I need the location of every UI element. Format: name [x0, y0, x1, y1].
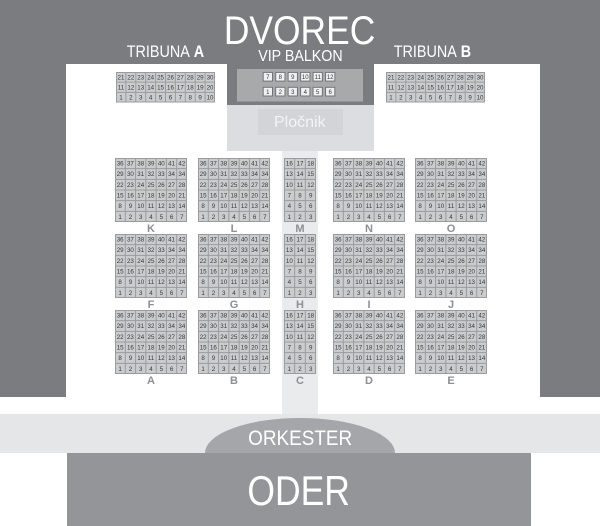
svg-text:13: 13 — [468, 203, 475, 210]
svg-text:36: 36 — [117, 161, 124, 168]
svg-text:21: 21 — [261, 269, 268, 276]
svg-text:12: 12 — [458, 203, 465, 210]
svg-text:9: 9 — [429, 355, 433, 362]
svg-text:10: 10 — [286, 334, 293, 341]
svg-text:4: 4 — [149, 214, 153, 221]
svg-text:37: 37 — [209, 237, 216, 244]
svg-text:30: 30 — [209, 323, 216, 330]
svg-text:23: 23 — [344, 182, 351, 189]
svg-text:26: 26 — [240, 258, 247, 265]
svg-text:40: 40 — [158, 313, 165, 320]
svg-text:34: 34 — [478, 247, 485, 254]
svg-text:16: 16 — [344, 345, 351, 352]
svg-text:25: 25 — [148, 334, 155, 341]
svg-text:23: 23 — [427, 258, 434, 265]
svg-text:38: 38 — [220, 313, 227, 320]
svg-text:9: 9 — [309, 345, 313, 352]
svg-text:5: 5 — [377, 290, 381, 297]
svg-text:9: 9 — [309, 193, 313, 200]
svg-text:8: 8 — [336, 203, 340, 210]
svg-text:14: 14 — [261, 203, 268, 210]
svg-text:5: 5 — [298, 203, 302, 210]
svg-text:26: 26 — [375, 182, 382, 189]
svg-text:1: 1 — [118, 366, 122, 373]
svg-text:2: 2 — [211, 366, 215, 373]
svg-text:11: 11 — [448, 355, 455, 362]
svg-text:37: 37 — [427, 161, 434, 168]
svg-text:4: 4 — [148, 95, 152, 102]
svg-text:5: 5 — [242, 214, 246, 221]
svg-text:13: 13 — [286, 247, 293, 254]
svg-text:1: 1 — [119, 95, 123, 102]
svg-text:41: 41 — [468, 161, 475, 168]
svg-text:2: 2 — [429, 366, 433, 373]
svg-text:9: 9 — [129, 203, 133, 210]
svg-text:3: 3 — [221, 366, 225, 373]
svg-text:24: 24 — [437, 258, 444, 265]
svg-text:29: 29 — [117, 323, 124, 330]
svg-text:8: 8 — [188, 95, 192, 102]
svg-text:10: 10 — [137, 279, 144, 286]
svg-text:3: 3 — [356, 366, 360, 373]
svg-text:40: 40 — [375, 237, 382, 244]
svg-text:28: 28 — [178, 182, 185, 189]
svg-text:41: 41 — [168, 237, 175, 244]
svg-text:23: 23 — [209, 182, 216, 189]
svg-text:26: 26 — [437, 74, 444, 81]
svg-text:18: 18 — [148, 193, 155, 200]
svg-text:19: 19 — [458, 345, 465, 352]
svg-text:7: 7 — [263, 214, 267, 221]
svg-text:27: 27 — [386, 334, 393, 341]
svg-text:19: 19 — [158, 193, 165, 200]
svg-text:25: 25 — [448, 334, 455, 341]
svg-text:16: 16 — [286, 313, 293, 320]
svg-text:39: 39 — [148, 313, 155, 320]
svg-text:40: 40 — [375, 313, 382, 320]
svg-text:9: 9 — [129, 279, 133, 286]
svg-text:19: 19 — [158, 345, 165, 352]
svg-text:23: 23 — [127, 182, 134, 189]
svg-text:16: 16 — [286, 161, 293, 168]
svg-text:37: 37 — [344, 161, 351, 168]
svg-text:18: 18 — [456, 84, 463, 91]
svg-text:32: 32 — [448, 247, 455, 254]
svg-text:34: 34 — [468, 323, 475, 330]
svg-text:3: 3 — [139, 290, 143, 297]
svg-text:30: 30 — [427, 323, 434, 330]
svg-text:4: 4 — [449, 214, 453, 221]
svg-text:6: 6 — [470, 366, 474, 373]
svg-text:42: 42 — [396, 161, 403, 168]
svg-text:21: 21 — [178, 193, 185, 200]
svg-text:13: 13 — [386, 355, 393, 362]
svg-text:13: 13 — [386, 279, 393, 286]
svg-text:5: 5 — [428, 95, 432, 102]
svg-text:28: 28 — [396, 182, 403, 189]
svg-text:19: 19 — [158, 269, 165, 276]
svg-text:28: 28 — [178, 258, 185, 265]
svg-text:22: 22 — [199, 334, 206, 341]
svg-text:40: 40 — [158, 237, 165, 244]
svg-text:14: 14 — [178, 279, 185, 286]
svg-text:21: 21 — [478, 269, 485, 276]
svg-text:34: 34 — [178, 323, 185, 330]
svg-text:29: 29 — [117, 247, 124, 254]
svg-text:31: 31 — [437, 323, 444, 330]
svg-text:1: 1 — [418, 214, 422, 221]
svg-text:36: 36 — [117, 237, 124, 244]
svg-text:15: 15 — [334, 193, 341, 200]
svg-text:13: 13 — [286, 323, 293, 330]
svg-text:32: 32 — [230, 323, 237, 330]
svg-text:29: 29 — [199, 247, 206, 254]
svg-text:33: 33 — [458, 171, 465, 178]
svg-text:36: 36 — [417, 161, 424, 168]
svg-text:38: 38 — [220, 161, 227, 168]
svg-text:31: 31 — [437, 171, 444, 178]
svg-text:41: 41 — [251, 237, 258, 244]
svg-text:34: 34 — [386, 247, 393, 254]
svg-text:33: 33 — [158, 323, 165, 330]
svg-text:11: 11 — [148, 203, 155, 210]
svg-text:32: 32 — [148, 171, 155, 178]
svg-text:20: 20 — [168, 269, 175, 276]
svg-text:7: 7 — [480, 366, 484, 373]
svg-text:8: 8 — [418, 355, 422, 362]
svg-text:27: 27 — [386, 182, 393, 189]
svg-text:31: 31 — [220, 247, 227, 254]
svg-text:34: 34 — [468, 171, 475, 178]
svg-text:4: 4 — [232, 214, 236, 221]
svg-text:30: 30 — [344, 171, 351, 178]
svg-text:6: 6 — [309, 203, 313, 210]
svg-text:2: 2 — [129, 95, 133, 102]
svg-text:42: 42 — [478, 313, 485, 320]
svg-text:25: 25 — [448, 258, 455, 265]
svg-text:37: 37 — [427, 313, 434, 320]
svg-text:9: 9 — [346, 355, 350, 362]
svg-text:22: 22 — [417, 258, 424, 265]
svg-text:5: 5 — [242, 290, 246, 297]
svg-text:31: 31 — [355, 247, 362, 254]
svg-text:36: 36 — [417, 237, 424, 244]
svg-text:12: 12 — [158, 279, 165, 286]
svg-text:37: 37 — [344, 313, 351, 320]
svg-text:13: 13 — [251, 355, 258, 362]
svg-text:15: 15 — [117, 345, 124, 352]
svg-text:14: 14 — [396, 279, 403, 286]
svg-text:34: 34 — [261, 323, 268, 330]
svg-text:6: 6 — [438, 95, 442, 102]
svg-text:6: 6 — [309, 279, 313, 286]
svg-text:5: 5 — [377, 366, 381, 373]
svg-text:1: 1 — [418, 366, 422, 373]
svg-text:39: 39 — [365, 237, 372, 244]
svg-text:4: 4 — [288, 203, 292, 210]
svg-text:42: 42 — [396, 237, 403, 244]
svg-text:9: 9 — [211, 203, 215, 210]
svg-text:8: 8 — [458, 95, 462, 102]
svg-text:16: 16 — [437, 84, 444, 91]
svg-text:6: 6 — [252, 290, 256, 297]
svg-text:7: 7 — [448, 95, 452, 102]
svg-text:25: 25 — [365, 258, 372, 265]
svg-text:2: 2 — [211, 214, 215, 221]
svg-text:28: 28 — [396, 258, 403, 265]
svg-text:27: 27 — [386, 258, 393, 265]
svg-text:22: 22 — [334, 258, 341, 265]
svg-text:29: 29 — [417, 171, 424, 178]
svg-text:12: 12 — [375, 355, 382, 362]
svg-text:20: 20 — [468, 193, 475, 200]
svg-text:34: 34 — [396, 323, 403, 330]
svg-text:31: 31 — [355, 171, 362, 178]
svg-text:10: 10 — [437, 355, 444, 362]
svg-text:42: 42 — [396, 313, 403, 320]
svg-text:37: 37 — [344, 237, 351, 244]
svg-text:17: 17 — [437, 345, 444, 352]
svg-text:20: 20 — [251, 269, 258, 276]
svg-text:5: 5 — [158, 95, 162, 102]
svg-text:13: 13 — [286, 171, 293, 178]
svg-text:1: 1 — [201, 366, 205, 373]
svg-text:4: 4 — [449, 366, 453, 373]
svg-text:18: 18 — [448, 269, 455, 276]
svg-text:7: 7 — [288, 345, 292, 352]
svg-text:36: 36 — [199, 161, 206, 168]
svg-text:11: 11 — [315, 75, 322, 81]
svg-text:29: 29 — [196, 74, 203, 81]
svg-text:15: 15 — [117, 269, 124, 276]
svg-text:10: 10 — [286, 182, 293, 189]
svg-text:16: 16 — [286, 237, 293, 244]
svg-text:10: 10 — [437, 279, 444, 286]
svg-text:23: 23 — [427, 182, 434, 189]
svg-text:28: 28 — [456, 74, 463, 81]
svg-text:13: 13 — [407, 84, 414, 91]
svg-text:3: 3 — [439, 366, 443, 373]
svg-text:39: 39 — [148, 237, 155, 244]
svg-text:3: 3 — [139, 214, 143, 221]
svg-text:20: 20 — [168, 193, 175, 200]
svg-text:14: 14 — [396, 355, 403, 362]
svg-text:20: 20 — [386, 345, 393, 352]
svg-text:37: 37 — [127, 161, 134, 168]
svg-text:2: 2 — [211, 290, 215, 297]
svg-text:18: 18 — [448, 193, 455, 200]
svg-text:28: 28 — [478, 334, 485, 341]
svg-text:34: 34 — [386, 323, 393, 330]
svg-text:28: 28 — [478, 258, 485, 265]
svg-text:27: 27 — [251, 182, 258, 189]
svg-text:12: 12 — [458, 355, 465, 362]
svg-text:38: 38 — [355, 237, 362, 244]
svg-text:24: 24 — [220, 258, 227, 265]
svg-text:6: 6 — [309, 355, 313, 362]
svg-text:33: 33 — [375, 247, 382, 254]
svg-text:27: 27 — [251, 258, 258, 265]
svg-text:9: 9 — [429, 279, 433, 286]
svg-text:14: 14 — [261, 355, 268, 362]
svg-text:6: 6 — [252, 214, 256, 221]
svg-text:5: 5 — [160, 214, 164, 221]
svg-text:2: 2 — [298, 214, 302, 221]
svg-text:18: 18 — [365, 345, 372, 352]
svg-text:32: 32 — [148, 323, 155, 330]
svg-text:18: 18 — [307, 161, 314, 168]
svg-text:38: 38 — [220, 237, 227, 244]
svg-text:34: 34 — [386, 171, 393, 178]
svg-text:40: 40 — [458, 237, 465, 244]
svg-text:5: 5 — [460, 366, 464, 373]
svg-text:3: 3 — [439, 290, 443, 297]
svg-text:26: 26 — [375, 258, 382, 265]
svg-text:7: 7 — [180, 214, 184, 221]
svg-text:19: 19 — [240, 345, 247, 352]
svg-text:20: 20 — [206, 84, 213, 91]
svg-text:19: 19 — [466, 84, 473, 91]
svg-text:39: 39 — [230, 161, 237, 168]
svg-text:3: 3 — [356, 214, 360, 221]
svg-text:15: 15 — [307, 171, 314, 178]
svg-text:40: 40 — [458, 313, 465, 320]
svg-text:31: 31 — [220, 323, 227, 330]
svg-text:22: 22 — [127, 74, 134, 81]
svg-text:8: 8 — [336, 279, 340, 286]
svg-text:25: 25 — [365, 182, 372, 189]
svg-text:39: 39 — [365, 161, 372, 168]
svg-text:13: 13 — [137, 84, 144, 91]
svg-text:16: 16 — [167, 84, 174, 91]
svg-text:37: 37 — [209, 313, 216, 320]
svg-text:29: 29 — [334, 171, 341, 178]
svg-text:25: 25 — [157, 74, 164, 81]
svg-text:2: 2 — [399, 95, 403, 102]
svg-text:21: 21 — [396, 345, 403, 352]
svg-text:9: 9 — [309, 269, 313, 276]
svg-text:12: 12 — [158, 355, 165, 362]
svg-text:30: 30 — [476, 74, 483, 81]
svg-text:3: 3 — [356, 290, 360, 297]
svg-text:9: 9 — [129, 355, 133, 362]
svg-text:26: 26 — [458, 258, 465, 265]
svg-text:11: 11 — [230, 279, 237, 286]
svg-text:30: 30 — [209, 247, 216, 254]
svg-text:9: 9 — [468, 95, 472, 102]
svg-text:1: 1 — [336, 214, 340, 221]
svg-text:11: 11 — [230, 355, 237, 362]
svg-text:36: 36 — [334, 313, 341, 320]
svg-text:13: 13 — [251, 279, 258, 286]
svg-text:10: 10 — [137, 203, 144, 210]
svg-text:19: 19 — [458, 193, 465, 200]
svg-text:41: 41 — [468, 237, 475, 244]
svg-text:10: 10 — [355, 203, 362, 210]
svg-text:22: 22 — [117, 258, 124, 265]
svg-text:34: 34 — [251, 247, 258, 254]
svg-text:23: 23 — [209, 258, 216, 265]
svg-text:34: 34 — [168, 323, 175, 330]
svg-text:9: 9 — [429, 203, 433, 210]
svg-text:28: 28 — [478, 182, 485, 189]
svg-text:10: 10 — [206, 95, 213, 102]
svg-text:16: 16 — [427, 345, 434, 352]
svg-text:42: 42 — [261, 161, 268, 168]
svg-text:30: 30 — [344, 247, 351, 254]
svg-text:4: 4 — [449, 290, 453, 297]
svg-text:12: 12 — [240, 203, 247, 210]
svg-text:15: 15 — [417, 193, 424, 200]
svg-text:15: 15 — [417, 345, 424, 352]
svg-text:10: 10 — [437, 203, 444, 210]
svg-text:13: 13 — [168, 355, 175, 362]
svg-text:20: 20 — [251, 193, 258, 200]
svg-text:6: 6 — [252, 366, 256, 373]
svg-text:27: 27 — [468, 182, 475, 189]
svg-text:29: 29 — [199, 171, 206, 178]
svg-text:17: 17 — [176, 84, 183, 91]
svg-text:21: 21 — [261, 345, 268, 352]
svg-text:18: 18 — [186, 84, 193, 91]
svg-text:17: 17 — [437, 269, 444, 276]
svg-text:42: 42 — [261, 237, 268, 244]
svg-text:3: 3 — [221, 214, 225, 221]
svg-text:18: 18 — [365, 193, 372, 200]
svg-text:21: 21 — [117, 74, 124, 81]
svg-text:11: 11 — [148, 279, 155, 286]
svg-text:30: 30 — [427, 171, 434, 178]
svg-text:17: 17 — [220, 193, 227, 200]
svg-text:7: 7 — [288, 269, 292, 276]
svg-text:10: 10 — [476, 95, 483, 102]
svg-text:2: 2 — [129, 290, 133, 297]
svg-text:32: 32 — [448, 323, 455, 330]
svg-text:24: 24 — [137, 182, 144, 189]
svg-text:26: 26 — [158, 182, 165, 189]
svg-text:40: 40 — [240, 237, 247, 244]
svg-text:24: 24 — [137, 258, 144, 265]
svg-text:10: 10 — [137, 355, 144, 362]
svg-text:15: 15 — [157, 84, 164, 91]
svg-text:24: 24 — [417, 74, 424, 81]
svg-text:30: 30 — [127, 247, 134, 254]
svg-text:10: 10 — [286, 258, 293, 265]
svg-text:9: 9 — [211, 355, 215, 362]
svg-text:29: 29 — [117, 171, 124, 178]
svg-text:18: 18 — [307, 237, 314, 244]
svg-text:30: 30 — [127, 323, 134, 330]
svg-text:18: 18 — [230, 193, 237, 200]
svg-text:15: 15 — [117, 193, 124, 200]
svg-text:24: 24 — [220, 334, 227, 341]
svg-text:7: 7 — [398, 366, 402, 373]
svg-text:23: 23 — [127, 258, 134, 265]
svg-text:5: 5 — [298, 355, 302, 362]
svg-text:24: 24 — [437, 182, 444, 189]
svg-text:19: 19 — [240, 269, 247, 276]
svg-text:12: 12 — [307, 334, 314, 341]
svg-text:13: 13 — [468, 279, 475, 286]
svg-text:15: 15 — [334, 345, 341, 352]
svg-text:2: 2 — [129, 366, 133, 373]
svg-text:34: 34 — [468, 247, 475, 254]
svg-text:15: 15 — [334, 269, 341, 276]
svg-text:1: 1 — [336, 290, 340, 297]
svg-text:32: 32 — [148, 247, 155, 254]
svg-text:33: 33 — [158, 247, 165, 254]
svg-text:11: 11 — [117, 84, 124, 91]
